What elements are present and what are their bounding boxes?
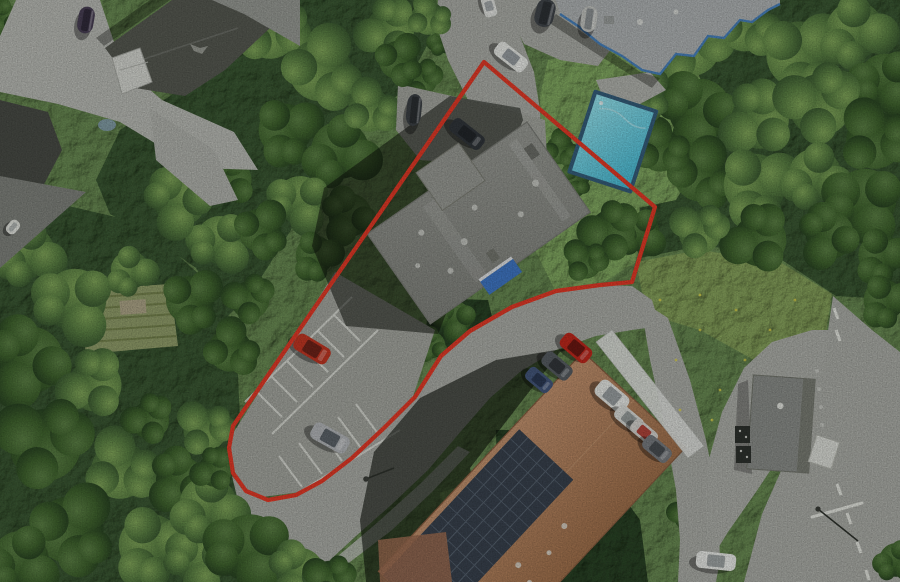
garden-pond [98,119,116,131]
aerial-map [0,0,900,582]
small-brown-roof [378,532,452,582]
roof-vent [674,10,679,15]
roof-vent [637,19,643,25]
street-lamp [363,476,369,482]
street-lamp [815,506,820,511]
roof-box [604,16,614,24]
garage-building [747,375,815,473]
